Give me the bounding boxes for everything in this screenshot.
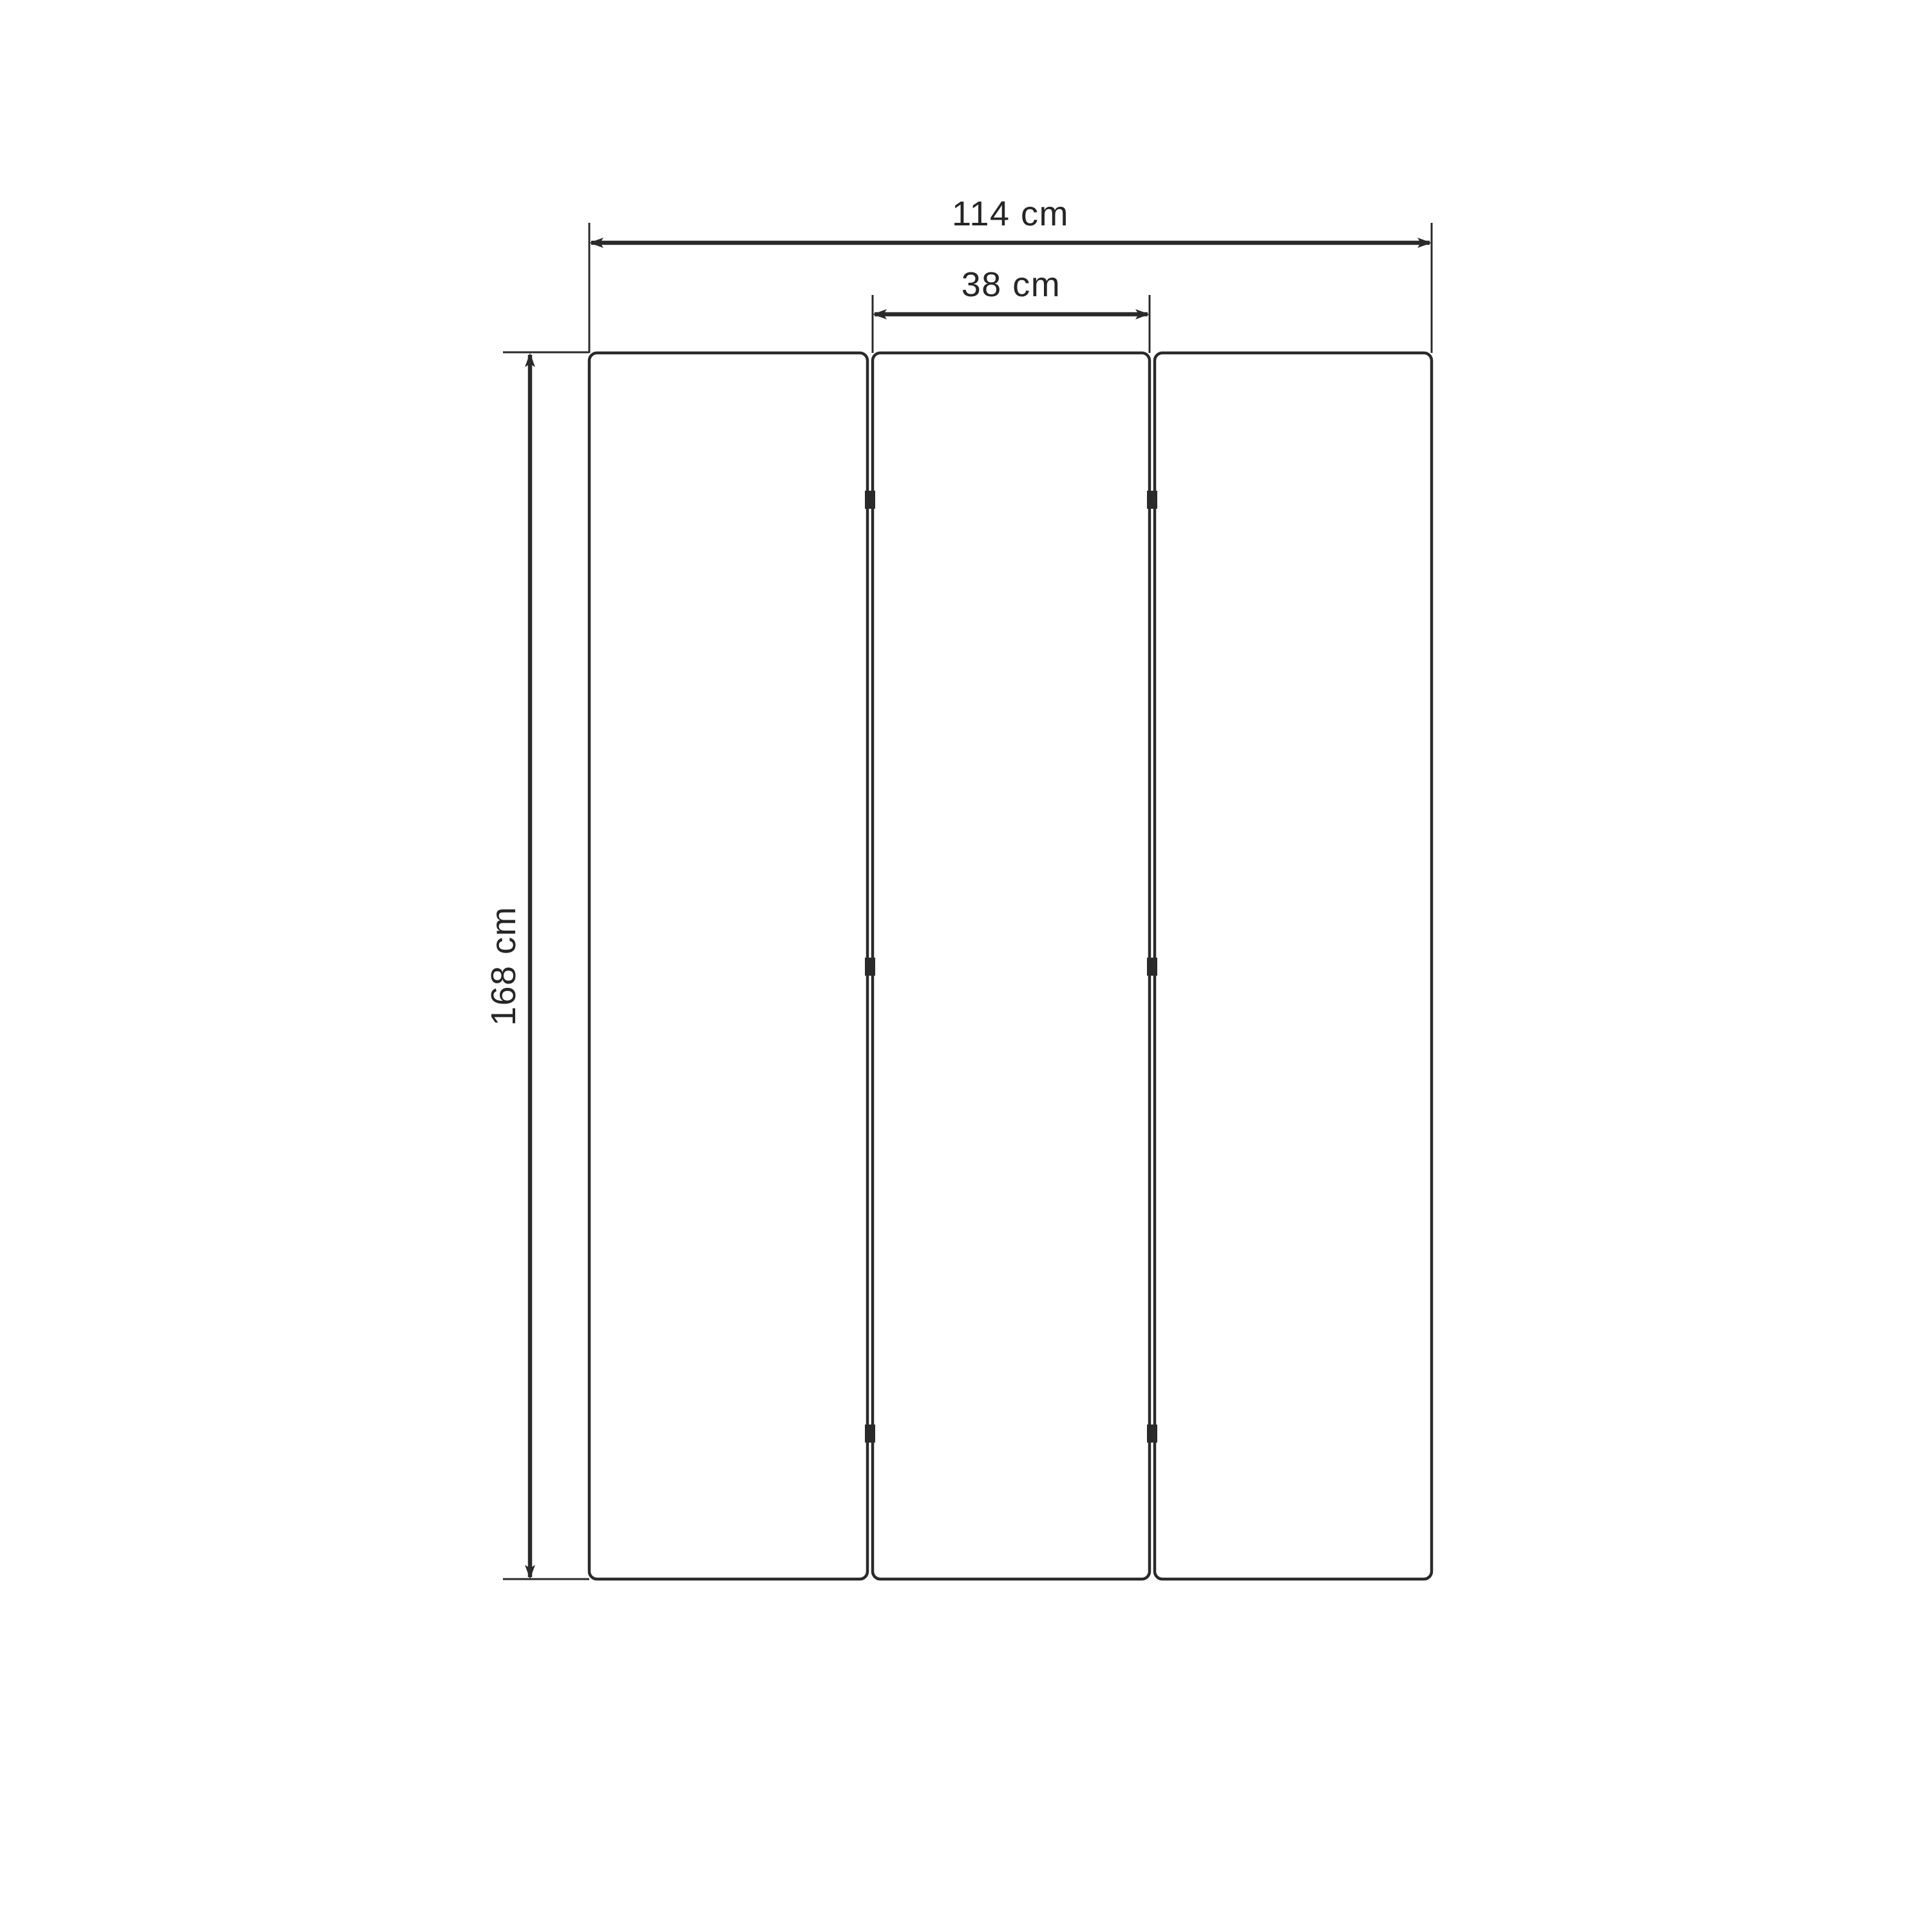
dimension-drawing-canvas: 114 cm 38 cm 168 cm — [0, 0, 1932, 1932]
panel-right — [1155, 353, 1432, 1579]
hinge-mark-left-middle — [865, 958, 875, 976]
dimension-panel-width: 38 cm — [873, 265, 1150, 353]
hinge-mark-right-bottom — [1147, 1425, 1157, 1443]
panel-group — [589, 353, 1432, 1579]
hinge-mark-right-middle — [1147, 958, 1157, 976]
panel-middle — [873, 353, 1150, 1579]
hinge-mark-left-bottom — [865, 1425, 875, 1443]
hinge-mark-right-top — [1147, 491, 1157, 509]
height-label: 168 cm — [484, 906, 523, 1026]
hinge-mark-left-top — [865, 491, 875, 509]
dimension-height: 168 cm — [484, 352, 589, 1579]
panel-width-label: 38 cm — [961, 265, 1061, 304]
panel-screen-drawing: 114 cm 38 cm 168 cm — [0, 0, 1932, 1932]
total-width-label: 114 cm — [952, 194, 1069, 233]
panel-left — [589, 353, 867, 1579]
